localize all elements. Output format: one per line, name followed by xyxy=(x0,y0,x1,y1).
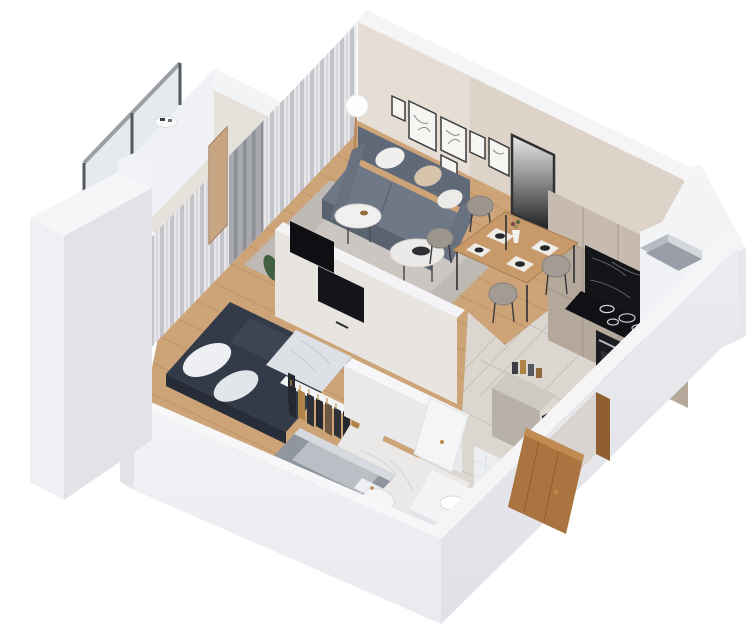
table-tray xyxy=(412,247,430,256)
balcony-table-items xyxy=(168,119,172,122)
floor-lamp-globe xyxy=(346,95,368,117)
balcony-door-sheer-overlay xyxy=(209,127,227,244)
detached-neighbor-wall xyxy=(30,153,152,500)
toilet-brass-button xyxy=(370,486,374,490)
floorplan-render xyxy=(0,0,750,632)
table-decor xyxy=(360,211,368,216)
entrance-door-handle xyxy=(554,490,558,494)
floorplan-svg xyxy=(0,0,750,632)
balcony-table xyxy=(155,117,177,128)
door-brass-handle xyxy=(440,440,444,444)
balcony-table-items xyxy=(160,118,165,121)
doorway-jamb-wood xyxy=(596,392,610,461)
neighbor-wall-left-face xyxy=(30,218,64,500)
coffee-table-small xyxy=(335,204,381,228)
